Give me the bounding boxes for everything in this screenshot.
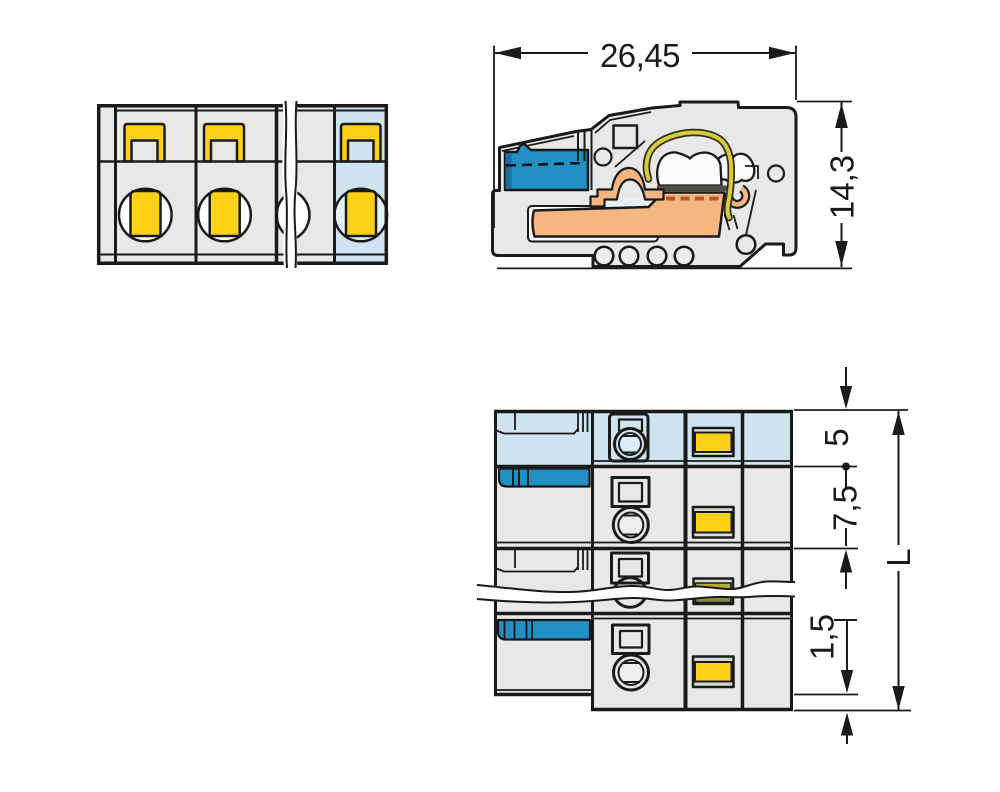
svg-text:26,45: 26,45 bbox=[600, 37, 680, 74]
svg-text:7,5: 7,5 bbox=[827, 485, 864, 531]
svg-text:14,3: 14,3 bbox=[824, 155, 861, 219]
svg-text:1,5: 1,5 bbox=[804, 614, 841, 660]
svg-text:L: L bbox=[880, 548, 917, 566]
svg-text:5: 5 bbox=[818, 428, 855, 446]
